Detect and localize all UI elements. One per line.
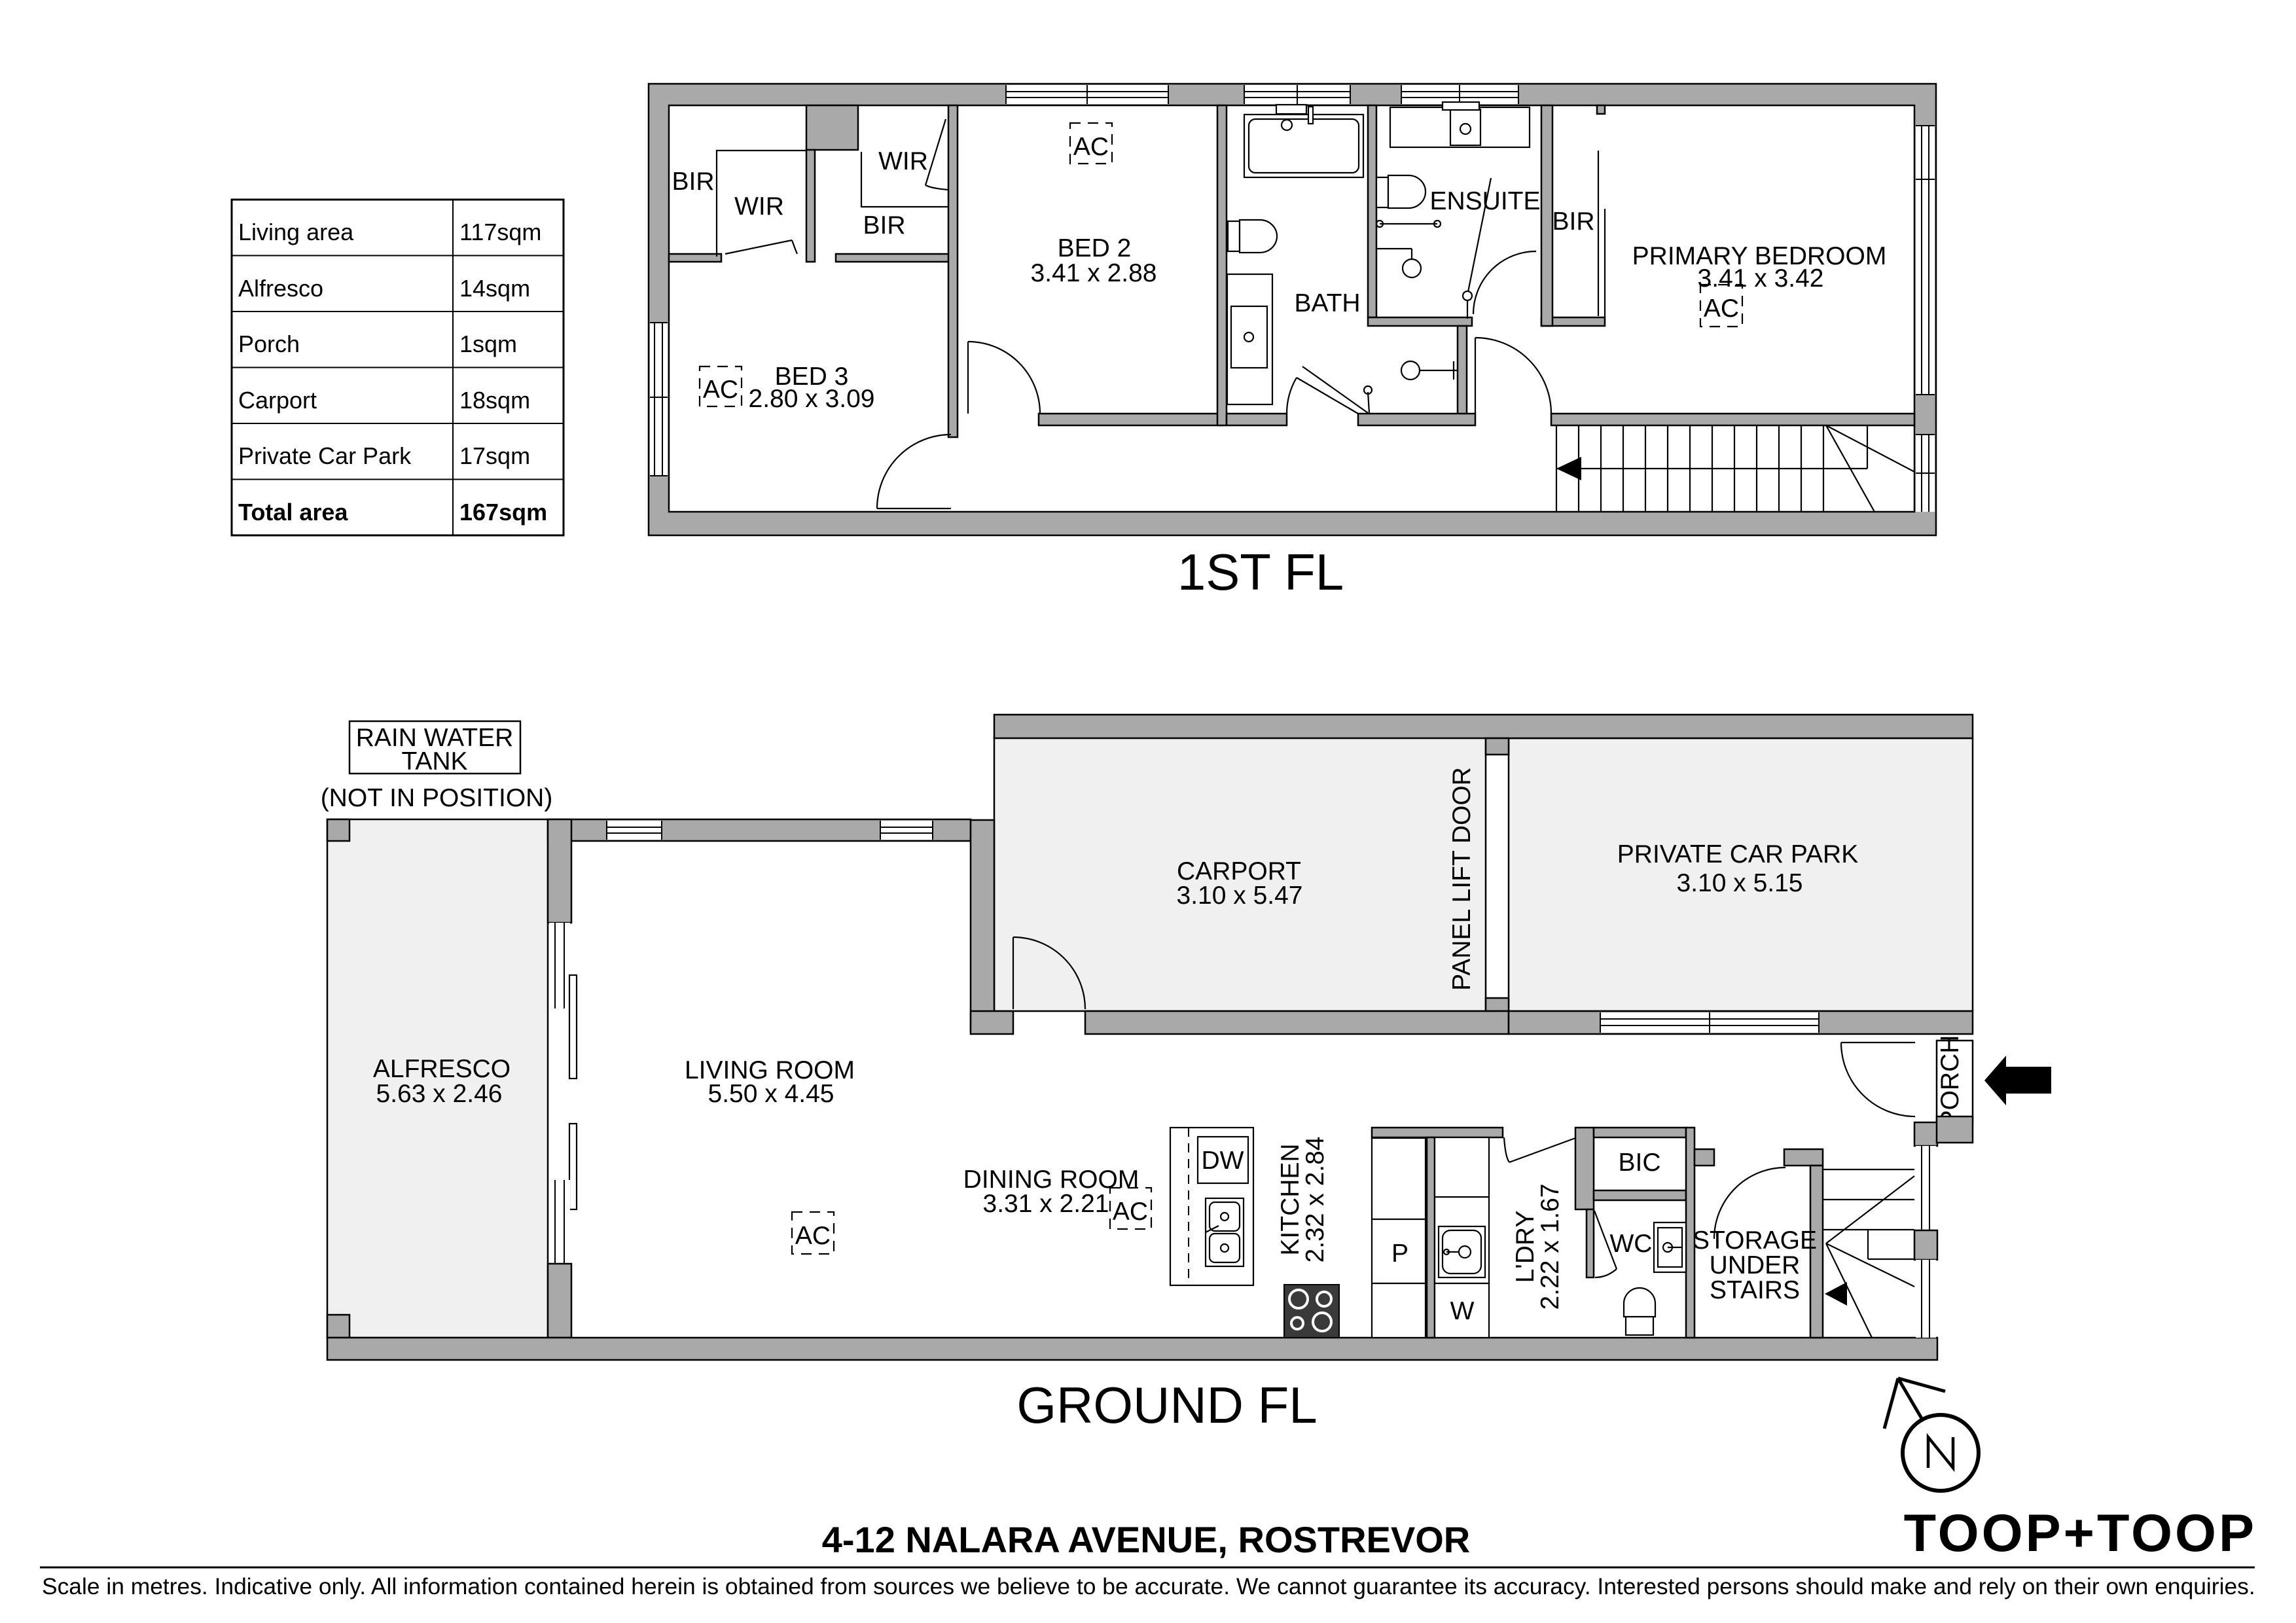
svg-text:1ST FL: 1ST FL <box>1177 543 1344 601</box>
svg-text:3.10 x 5.47: 3.10 x 5.47 <box>1177 882 1303 910</box>
svg-text:Living area: Living area <box>238 219 354 245</box>
svg-text:4-12 NALARA AVENUE, ROSTREVOR: 4-12 NALARA AVENUE, ROSTREVOR <box>822 1519 1471 1560</box>
svg-text:5.63 x 2.46: 5.63 x 2.46 <box>376 1080 503 1108</box>
svg-text:3.31 x 2.21: 3.31 x 2.21 <box>983 1190 1109 1218</box>
svg-text:18sqm: 18sqm <box>459 387 530 414</box>
svg-text:ALFRESCO: ALFRESCO <box>373 1055 511 1083</box>
svg-text:DW: DW <box>1202 1147 1244 1175</box>
svg-text:PORCH: PORCH <box>1936 1035 1964 1128</box>
svg-text:GROUND FL: GROUND FL <box>1016 1376 1317 1434</box>
svg-text:KITCHEN: KITCHEN <box>1276 1143 1304 1255</box>
svg-text:Scale in metres. Indicative on: Scale in metres. Indicative only. All in… <box>42 1573 2255 1599</box>
svg-text:3.41 x 2.88: 3.41 x 2.88 <box>1031 259 1157 287</box>
svg-text:3.41 x 3.42: 3.41 x 3.42 <box>1698 264 1824 293</box>
svg-text:Porch: Porch <box>238 330 300 357</box>
svg-text:AC: AC <box>1113 1198 1148 1226</box>
svg-text:AC: AC <box>703 376 738 404</box>
svg-text:UNDER: UNDER <box>1710 1251 1801 1279</box>
svg-text:2.22 x 1.67: 2.22 x 1.67 <box>1536 1184 1564 1310</box>
svg-text:Private Car Park: Private Car Park <box>238 442 412 469</box>
svg-text:PRIVATE CAR PARK: PRIVATE CAR PARK <box>1617 840 1858 868</box>
svg-text:STAIRS: STAIRS <box>1710 1276 1800 1304</box>
svg-text:Total area: Total area <box>238 499 348 526</box>
svg-text:14sqm: 14sqm <box>459 275 530 302</box>
svg-text:117sqm: 117sqm <box>459 219 541 245</box>
svg-text:AC: AC <box>1073 133 1109 161</box>
svg-text:BATH: BATH <box>1294 289 1360 317</box>
svg-text:Carport: Carport <box>238 387 317 414</box>
svg-text:2.32 x 2.84: 2.32 x 2.84 <box>1301 1137 1329 1263</box>
svg-text:W: W <box>1450 1297 1475 1325</box>
svg-text:TANK: TANK <box>401 747 467 776</box>
svg-text:BIR: BIR <box>863 211 905 240</box>
svg-text:PANEL LIFT DOOR: PANEL LIFT DOOR <box>1448 767 1476 991</box>
svg-text:AC: AC <box>1704 294 1739 323</box>
svg-text:3.10 x 5.15: 3.10 x 5.15 <box>1677 869 1803 897</box>
svg-text:(NOT IN POSITION): (NOT IN POSITION) <box>321 784 553 812</box>
svg-text:17sqm: 17sqm <box>459 442 530 469</box>
svg-text:BIR: BIR <box>672 168 714 196</box>
svg-text:BIR: BIR <box>1552 207 1594 236</box>
svg-text:WC: WC <box>1610 1230 1653 1258</box>
svg-text:5.50 x 4.45: 5.50 x 4.45 <box>708 1080 834 1108</box>
svg-text:BED 2: BED 2 <box>1058 234 1132 262</box>
svg-text:AC: AC <box>795 1222 831 1250</box>
svg-text:P: P <box>1391 1240 1408 1268</box>
svg-text:WIR: WIR <box>878 147 928 175</box>
svg-text:L'DRY: L'DRY <box>1511 1211 1539 1283</box>
svg-text:1sqm: 1sqm <box>459 330 517 357</box>
svg-text:TOOP+TOOP: TOOP+TOOP <box>1904 1504 2257 1563</box>
svg-text:BIC: BIC <box>1618 1149 1660 1177</box>
svg-text:WIR: WIR <box>734 192 784 221</box>
svg-text:167sqm: 167sqm <box>459 499 547 526</box>
svg-text:Alfresco: Alfresco <box>238 275 323 302</box>
svg-text:2.80 x 3.09: 2.80 x 3.09 <box>749 385 875 413</box>
svg-text:ENSUITE: ENSUITE <box>1429 187 1540 215</box>
svg-text:STORAGE: STORAGE <box>1693 1226 1817 1255</box>
